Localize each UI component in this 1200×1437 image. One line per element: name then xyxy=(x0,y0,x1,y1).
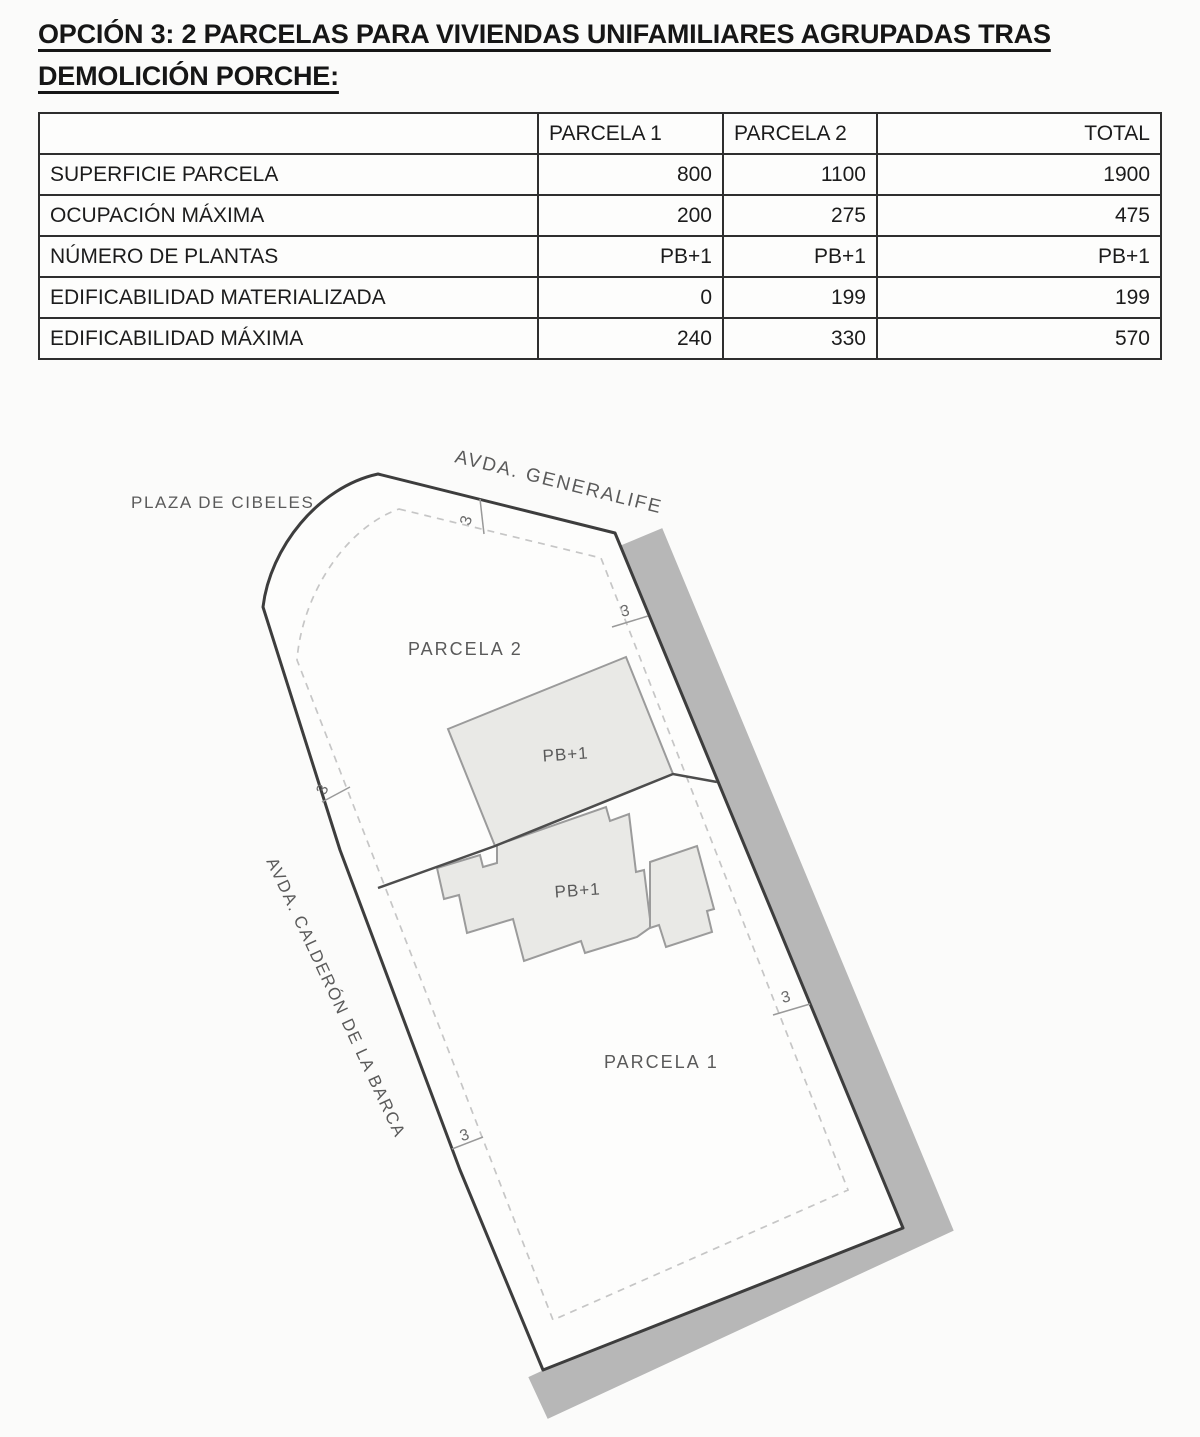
building-parcela1-label: PB+1 xyxy=(554,879,601,901)
parcel1-label: PARCELA 1 xyxy=(604,1052,719,1072)
cell-parcela1: PB+1 xyxy=(538,236,723,277)
parcel2-label: PARCELA 2 xyxy=(408,639,523,659)
header-parcela2: PARCELA 2 xyxy=(723,113,877,154)
cell-total: 570 xyxy=(877,318,1161,359)
header-total: TOTAL xyxy=(877,113,1161,154)
street-label-plaza-de-cibeles: PLAZA DE CIBELES xyxy=(131,493,314,512)
building-parcela2-label: PB+1 xyxy=(542,743,589,765)
cell-parcela1: 0 xyxy=(538,277,723,318)
table-row: EDIFICABILIDAD MÁXIMA 240 330 570 xyxy=(39,318,1161,359)
cell-parcela2: 1100 xyxy=(723,154,877,195)
cell-parcela2: 199 xyxy=(723,277,877,318)
header-empty xyxy=(39,113,538,154)
cell-parcela2: PB+1 xyxy=(723,236,877,277)
parcels-table: PARCELA 1 PARCELA 2 TOTAL SUPERFICIE PAR… xyxy=(38,112,1162,360)
cell-total: 1900 xyxy=(877,154,1161,195)
cell-parcela1: 240 xyxy=(538,318,723,359)
table-header-row: PARCELA 1 PARCELA 2 TOTAL xyxy=(39,113,1161,154)
cell-total: PB+1 xyxy=(877,236,1161,277)
header-parcela1: PARCELA 1 xyxy=(538,113,723,154)
cell-total: 475 xyxy=(877,195,1161,236)
table-row: NÚMERO DE PLANTAS PB+1 PB+1 PB+1 xyxy=(39,236,1161,277)
cell-total: 199 xyxy=(877,277,1161,318)
table-row: EDIFICABILIDAD MATERIALIZADA 0 199 199 xyxy=(39,277,1161,318)
page-title: OPCIÓN 3: 2 PARCELAS PARA VIVIENDAS UNIF… xyxy=(38,13,1168,97)
page-title-line2: DEMOLICIÓN PORCHE: xyxy=(38,55,1168,97)
cell-parcela1: 800 xyxy=(538,154,723,195)
page-title-line1: OPCIÓN 3: 2 PARCELAS PARA VIVIENDAS UNIF… xyxy=(38,13,1168,55)
row-label: OCUPACIÓN MÁXIMA xyxy=(39,195,538,236)
cell-parcela1: 200 xyxy=(538,195,723,236)
table-row: SUPERFICIE PARCELA 800 1100 1900 xyxy=(39,154,1161,195)
table-row: OCUPACIÓN MÁXIMA 200 275 475 xyxy=(39,195,1161,236)
row-label: EDIFICABILIDAD MATERIALIZADA xyxy=(39,277,538,318)
row-label: EDIFICABILIDAD MÁXIMA xyxy=(39,318,538,359)
row-label: SUPERFICIE PARCELA xyxy=(39,154,538,195)
row-label: NÚMERO DE PLANTAS xyxy=(39,236,538,277)
cell-parcela2: 330 xyxy=(723,318,877,359)
site-plan: 3 3 3 3 3 AVDA. GENERALIFE PLAZA DE CIBE… xyxy=(0,430,1200,1437)
cell-parcela2: 275 xyxy=(723,195,877,236)
